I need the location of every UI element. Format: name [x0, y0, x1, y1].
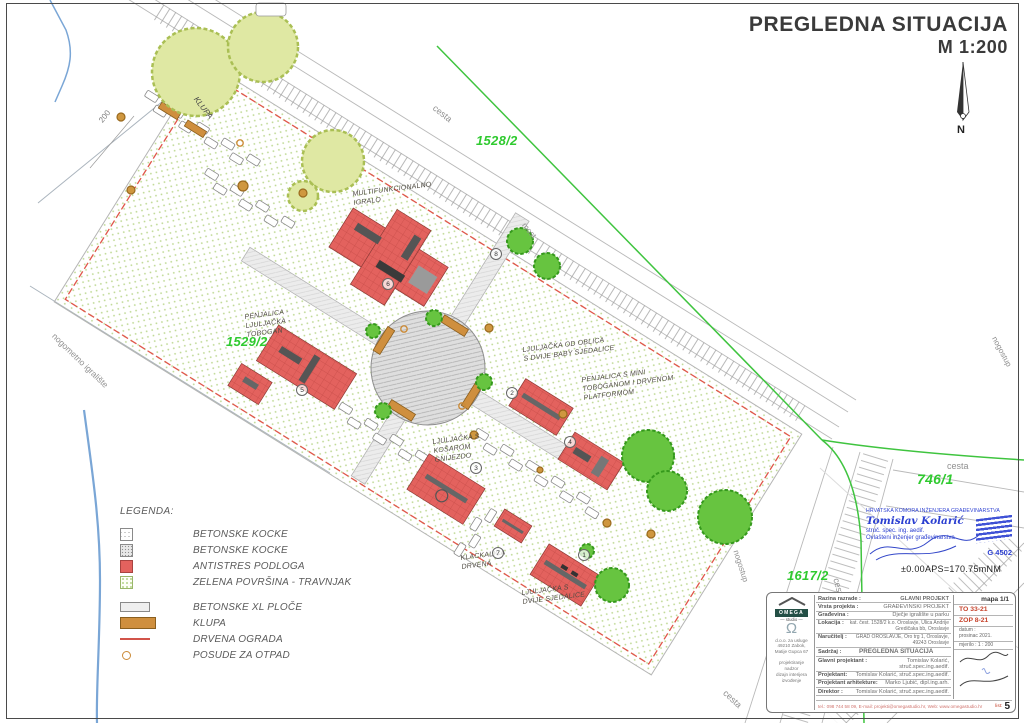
approval-signatures-icon: [956, 650, 1012, 694]
omega-icon: Ω: [769, 622, 814, 636]
bench-swatch-icon: [120, 617, 156, 629]
sheet-label: list:: [995, 704, 1002, 709]
row-label: Građevina :: [818, 612, 849, 618]
wooden-fence-swatch-icon: [120, 638, 150, 640]
title-scale: M 1:200: [749, 37, 1008, 58]
title-block-footer: tel.: 098 744 58 09, E-mail: projekti@om…: [816, 700, 1012, 711]
row-value: GLAVNI PROJEKT: [900, 596, 949, 602]
elevation-note: ±0.00APS=170.75mNM: [901, 564, 1001, 574]
company-services: projektiranje nadzor dizajn interijera i…: [769, 660, 814, 684]
marker-3: 3: [470, 462, 482, 474]
row-label: Projektant:: [818, 672, 847, 678]
row-projektant-arhitekture: Projektant arhitekture: Marko Ljubić, di…: [816, 680, 951, 688]
row-glavni-projektant: Glavni projektant : Tomislav Kolarić, st…: [816, 657, 951, 672]
row-label: Glavni projektant :: [818, 658, 867, 664]
marker-2: 2: [506, 387, 518, 399]
row-label: Sadržaj :: [818, 649, 841, 655]
concrete-blocks2-swatch-icon: [120, 544, 133, 557]
engineer-stamp: HRVATSKA KOMORA INŽENJERA GRAĐEVINARSTVA…: [866, 508, 1020, 543]
legend-title: LEGENDA:: [120, 506, 351, 517]
legend-item: BETONSKE XL PLOČE: [120, 599, 351, 615]
north-arrow-icon: [957, 62, 969, 120]
sheet-value: 5: [1004, 701, 1010, 712]
antistress-surface-swatch-icon: [120, 560, 133, 573]
row-value: GRAĐEVINSKI PROJEKT: [883, 604, 949, 610]
row-value: Tomislav Kolarić, struč.spec.ing.aedif.: [856, 672, 949, 678]
company-name: OMEGA: [775, 609, 808, 617]
legend: LEGENDA: BETONSKE KOCKE BETONSKE KOCKE A…: [120, 506, 351, 663]
row-value: PREGLEDNA SITUACIJA: [843, 648, 949, 655]
row-direktor: Direktor : Tomislav Kolarić, struč.spec.…: [816, 688, 951, 696]
marker-6: 6: [382, 278, 394, 290]
legend-label: DRVENA OGRADA: [193, 634, 283, 645]
row-razina: Razina razrade : GLAVNI PROJEKT: [816, 595, 951, 603]
row-label: Projektant arhitekture:: [818, 680, 878, 686]
parcel-1528-2: 1528/2: [476, 133, 518, 148]
road-label-right: cesta: [947, 461, 969, 471]
date-row: datum : prosinac 2021.: [954, 627, 1013, 642]
row-value: Dječje igralište u parku: [892, 612, 949, 618]
marker-8: 8: [490, 248, 502, 260]
legend-label: BETONSKE KOCKE: [193, 529, 288, 540]
legend-label: KLUPA: [193, 618, 226, 629]
legend-item: ZELENA POVRŠINA - TRAVNJAK: [120, 574, 351, 590]
stamp-number: G 4502: [987, 548, 1012, 557]
row-value: Tomislav Kolarić, struč.spec.ing.aedif.: [869, 658, 949, 671]
mapa-number: mapa 1/1: [954, 595, 1013, 605]
scale-value: 1 : 200: [978, 642, 993, 648]
legend-item: POSUDE ZA OTPAD: [120, 647, 351, 663]
row-lokacija: Lokacija : kat. čest. 1528/2 k.o. Orosla…: [816, 620, 951, 634]
legend-item: BETONSKE KOCKE: [120, 542, 351, 558]
row-value: Marko Ljubić, dipl.ing.arh.: [885, 680, 949, 686]
drawing-title: PREGLEDNA SITUACIJA M 1:200: [749, 13, 1008, 58]
legend-label: BETONSKE XL PLOČE: [193, 602, 302, 613]
row-vrsta: Vrsta projekta : GRAĐEVINSKI PROJEKT: [816, 603, 951, 611]
row-projektant: Projektant: Tomislav Kolarić, struč.spec…: [816, 672, 951, 680]
legend-item: ANTISTRES PODLOGA: [120, 558, 351, 574]
lawn-swatch-icon: [120, 576, 133, 589]
roof-icon: [777, 597, 807, 606]
marker-7: 7: [492, 547, 504, 559]
row-narucitelj: Naručitelj : GRAD OROSLAVJE, Oro trg 1, …: [816, 634, 951, 648]
legend-item: DRVENA OGRADA: [120, 631, 351, 647]
legend-item: BETONSKE KOCKE: [120, 526, 351, 542]
row-label: Vrsta projekta :: [818, 604, 858, 610]
zop-number: ZOP 8-21: [954, 616, 1013, 627]
label-climber-swing-slide: PENJALICA - LJULJAČKA - TOBOGAN: [244, 308, 292, 341]
row-label: Lokacija :: [818, 620, 844, 626]
parcel-1617-2: 1617/2: [787, 568, 829, 583]
to-number: TO 33-21: [954, 605, 1013, 616]
row-gradevina: Građevina : Dječje igralište u parku: [816, 612, 951, 620]
row-value: GRAD OROSLAVJE, Oro trg 1, Oroslavje, 49…: [849, 635, 949, 646]
date-value: prosinac 2021.: [959, 633, 992, 639]
row-label: Direktor :: [818, 689, 843, 695]
legend-label: ANTISTRES PODLOGA: [193, 561, 305, 572]
marker-5: 5: [296, 384, 308, 396]
dimension-box: [256, 3, 286, 16]
row-sadrzaj: Sadržaj : PREGLEDNA SITUACIJA: [816, 648, 951, 657]
title-block: OMEGA — studio — Ω d.o.o. za usluge 4921…: [766, 592, 1016, 713]
contact-line: tel.: 098 744 58 09, E-mail: projekti@om…: [818, 704, 982, 709]
signature-scribble-icon: [866, 526, 986, 566]
stamp-chamber: HRVATSKA KOMORA INŽENJERA GRAĐEVINARSTVA: [866, 508, 1020, 515]
xl-slabs-swatch-icon: [120, 602, 150, 612]
row-value: kat. čest. 1528/2 k.o. Oroslavje, Ulica …: [846, 621, 949, 632]
drawing-sheet: { "title": {"line1": "PREGLEDNA SITUACIJ…: [0, 0, 1024, 723]
scale-label: mjerilo :: [959, 642, 977, 648]
north-label: N: [957, 124, 965, 136]
row-value: Tomislav Kolarić, struč.spec.ing.aedif.: [856, 689, 949, 695]
waste-bin-swatch-icon: [122, 651, 131, 660]
marker-4: 4: [564, 436, 576, 448]
company-address: d.o.o. za usluge 49210 Zabok, Matije Gup…: [769, 638, 814, 655]
row-label: Razina razrade :: [818, 596, 861, 602]
scale-row: mjerilo : 1 : 200: [954, 642, 1013, 651]
title-line1: PREGLEDNA SITUACIJA: [749, 13, 1008, 37]
concrete-blocks-swatch-icon: [120, 528, 133, 541]
marker-1: 1: [578, 549, 590, 561]
drawing-meta: mapa 1/1 TO 33-21 ZOP 8-21 datum : prosi…: [953, 595, 1013, 699]
legend-item: KLUPA: [120, 615, 351, 631]
project-info: Razina razrade : GLAVNI PROJEKT Vrsta pr…: [816, 595, 951, 699]
row-label: Naručitelj :: [818, 634, 847, 640]
legend-label: BETONSKE KOCKE: [193, 545, 288, 556]
label-nest-basket-swing: LJULJAČKA S KOŠAROM GNIJEZDO: [432, 432, 482, 465]
legend-label: ZELENA POVRŠINA - TRAVNJAK: [193, 577, 351, 588]
company-panel: OMEGA — studio — Ω d.o.o. za usluge 4921…: [769, 595, 815, 710]
legend-label: POSUDE ZA OTPAD: [193, 650, 290, 661]
sheet-number: list: 5: [995, 701, 1010, 712]
parcel-746-1: 746/1: [917, 471, 954, 487]
